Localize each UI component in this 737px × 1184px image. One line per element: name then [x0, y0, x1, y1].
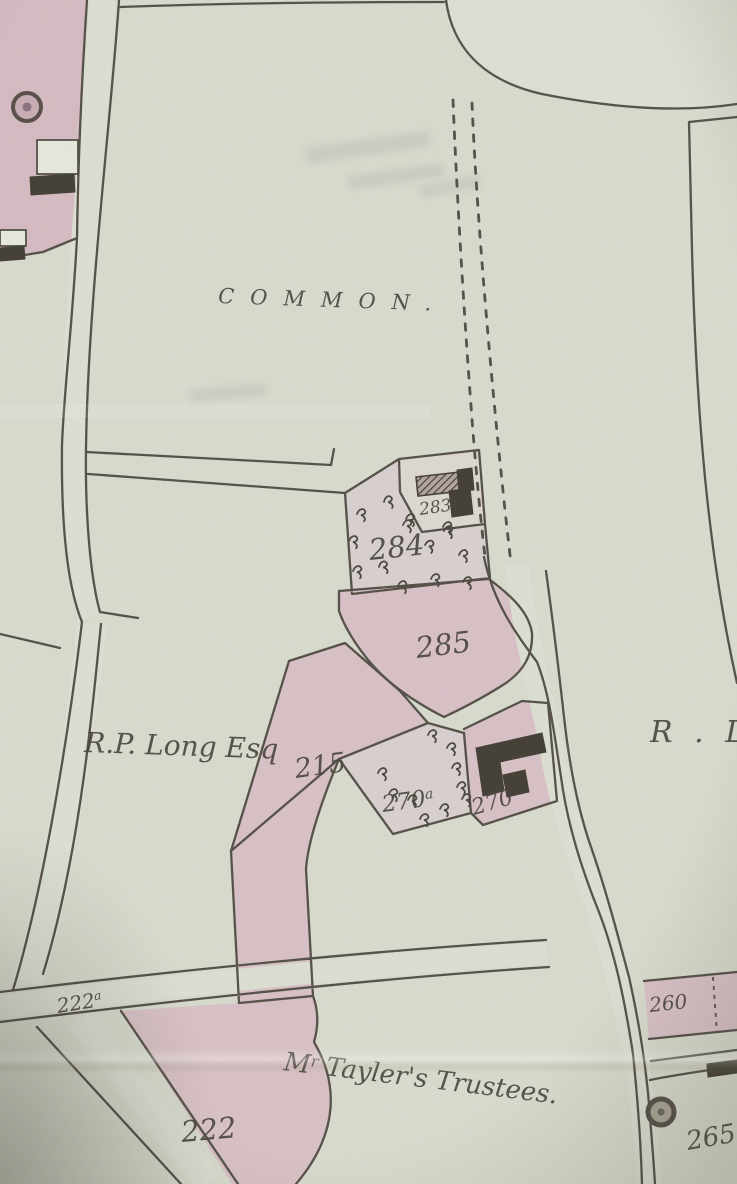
estate-map: COMMON.R.P. Long EsqR . LMr Tayler's Tru…	[0, 0, 737, 1184]
map-photo: COMMON.R.P. Long EsqR . LMr Tayler's Tru…	[0, 0, 737, 1184]
photo-artifacts	[0, 0, 737, 1184]
corner-shadow	[0, 0, 737, 1184]
